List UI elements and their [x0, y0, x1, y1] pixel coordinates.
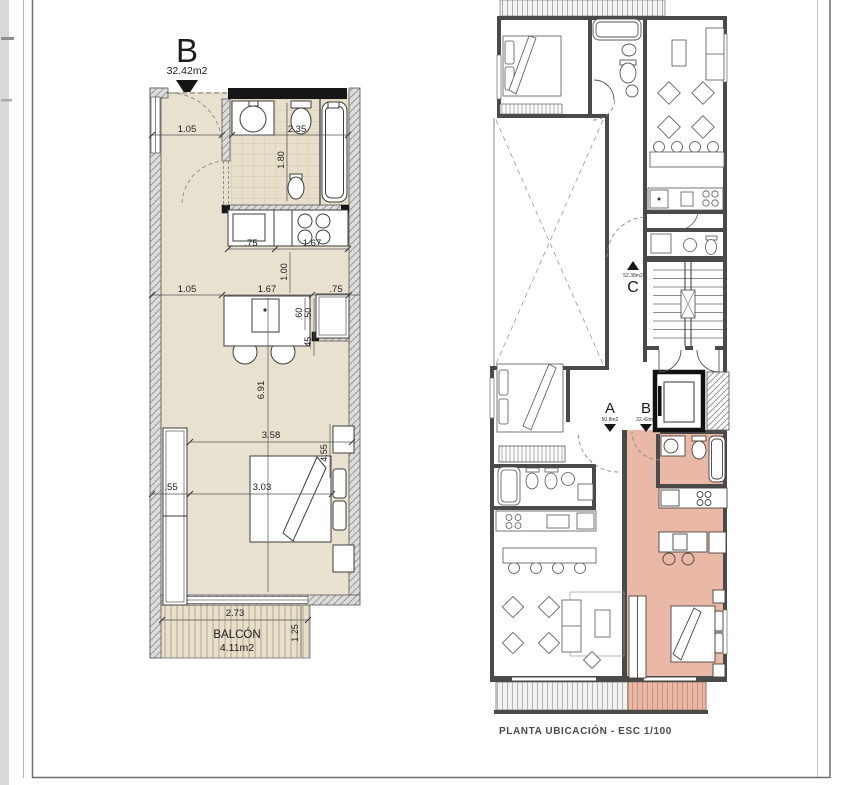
elevator [655, 372, 729, 430]
dim-entry-width: 1.05 [178, 124, 197, 135]
pillow [505, 41, 514, 64]
tap [249, 101, 258, 106]
unit-a-area: 50.8m2 [602, 417, 619, 423]
courtyard-void [496, 120, 603, 364]
balcony-slider [168, 597, 308, 604]
scan-artifact [1, 37, 14, 40]
bidet-bowl [545, 473, 557, 489]
vanity [651, 234, 671, 253]
dim-balcony-depth: 1.25 [290, 624, 300, 642]
sink [562, 473, 575, 486]
dining-chairs [658, 82, 715, 139]
faucet-dot [263, 308, 266, 311]
lintel-black [228, 88, 347, 99]
bar-counter [503, 548, 596, 563]
down-arrow-icon [604, 424, 616, 432]
counterweight [658, 386, 662, 416]
nightstand [333, 545, 354, 572]
dim-counter-left: .75 [244, 238, 257, 249]
dim-island-mid: .50 [303, 308, 313, 321]
dim-island-bottom: .45 [303, 337, 313, 350]
unit-b-tag: B 32.42m2 [167, 32, 208, 97]
closet [499, 446, 565, 462]
scan-edge-band [0, 0, 9, 785]
floorplan-drawing: B 32.42m2 [0, 0, 864, 785]
sink [684, 239, 697, 252]
dim-bed-side: 4.55 [319, 444, 329, 462]
dim-bath-depth: 1.80 [276, 151, 286, 169]
tub-tap [328, 102, 339, 108]
window-left [151, 97, 160, 153]
nightstand [713, 590, 725, 603]
dining-chairs [502, 596, 559, 653]
bidet-tank [545, 468, 558, 472]
roof-hatch-band [500, 0, 665, 16]
coffee-table [672, 40, 686, 66]
sink [622, 44, 636, 56]
unit-b-detail-plan: B 32.42m2 [149, 32, 360, 658]
scan-artifact [1, 99, 12, 102]
bidet-bowl [288, 177, 304, 199]
dim-closet-depth: .55 [164, 482, 177, 493]
floorplan-page: B 32.42m2 [0, 0, 864, 785]
tall-cabinet [316, 294, 349, 338]
toilet-tank [692, 436, 706, 441]
balcony-label: BALCÓN [213, 628, 260, 641]
wall-left [150, 88, 161, 658]
plan-caption: PLANTA UBICACIÓN - ESC 1/100 [499, 724, 672, 737]
unit-c-label: C [627, 279, 639, 296]
dim-hall-left: 1.05 [178, 284, 197, 295]
unit-a-tag: A 50.8m2 [602, 400, 619, 432]
vestibule-doors [659, 350, 719, 372]
pillow [333, 501, 346, 530]
shaft-hatch [707, 372, 729, 430]
wall-bath-entry [222, 99, 230, 161]
dim-kitchen-depth: 1.00 [279, 263, 289, 281]
balcony-a-deck [496, 682, 628, 710]
tall-cabinet [709, 532, 726, 553]
up-arrow-icon [627, 261, 639, 270]
small-bathroom [651, 210, 717, 255]
pillow [715, 611, 723, 631]
toilet-bowl [620, 63, 636, 83]
balcony-b-deck [628, 682, 706, 710]
pillow [715, 633, 723, 653]
kitchen-counter [659, 488, 727, 508]
wall-top-stub [150, 88, 168, 98]
pillow [499, 370, 508, 395]
toilet-bowl [706, 240, 717, 255]
bar-counter [650, 152, 724, 167]
unit-b-area: 32.42m2 [636, 417, 656, 423]
toilet-tank [526, 468, 539, 472]
unit-b-label: B [641, 400, 651, 417]
bar-stools [654, 142, 719, 153]
dim-hall-mid: 1.67 [258, 284, 277, 295]
dim-bath-width: 2.35 [288, 124, 307, 135]
drain [626, 85, 638, 97]
staircase [653, 262, 723, 346]
upper-kitchen [648, 188, 723, 210]
upper-living [650, 28, 724, 167]
dim-room-length: 6.91 [256, 381, 267, 400]
island-counter [659, 532, 707, 552]
dim-hall-right: .75 [329, 284, 342, 295]
pillow [499, 399, 508, 424]
location-plan: 52.38m2 C A 50.8m2 B 32.42m2 [490, 0, 729, 737]
toilet-bowl [692, 441, 706, 459]
unit-c-entry-swing [607, 217, 647, 257]
dim-room-width-lower: 3.03 [253, 482, 272, 493]
toilet-bowl [526, 473, 538, 489]
unit-c-tag: 52.38m2 C [623, 261, 643, 296]
dim-balcony-width: 2.73 [226, 608, 245, 619]
dim-counter-right: 1.67 [303, 238, 322, 249]
closet [500, 104, 562, 114]
pouf [584, 652, 601, 669]
unit-label: B [176, 32, 198, 69]
dim-room-width-upper: 3.58 [262, 430, 281, 441]
nightstand [713, 664, 725, 677]
unit-a-label: A [605, 400, 615, 417]
door-swing [594, 80, 614, 100]
coffee-table [595, 610, 610, 637]
upper-bathroom [593, 19, 641, 100]
balcony-area: 4.11m2 [220, 642, 254, 654]
pillow [333, 469, 346, 498]
nightstand [333, 426, 354, 453]
unit-area: 32.42m2 [167, 65, 208, 77]
bar-stools [509, 563, 586, 574]
shelf [578, 484, 593, 500]
wall-right [349, 88, 360, 597]
upper-bedroom [500, 36, 562, 114]
toilet-tank [291, 101, 311, 108]
